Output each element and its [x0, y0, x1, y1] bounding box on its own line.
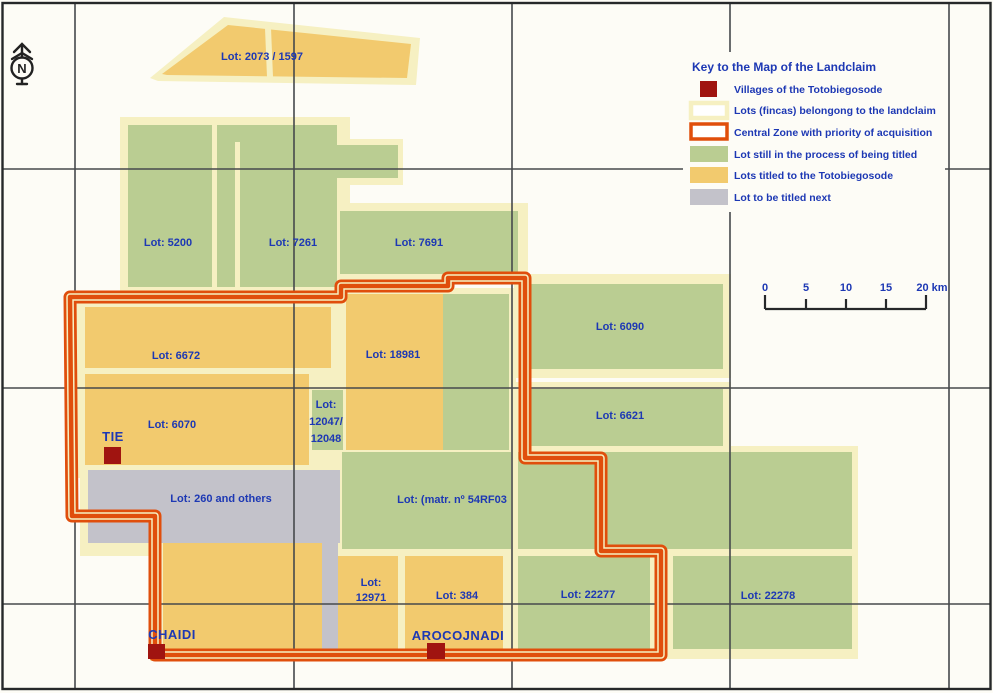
lot-12047-line2: 12047/ — [309, 416, 343, 428]
village-tie-label: TIE — [102, 429, 124, 444]
gray-fill-swatch — [690, 189, 728, 205]
lot-260-label: Lot: 260 and others — [170, 493, 271, 505]
village-chaidi-square — [148, 644, 165, 659]
lot-22278-label: Lot: 22278 — [741, 590, 795, 602]
scale-tick-label-0: 0 — [762, 282, 768, 294]
scale-tick-label-5: 5 — [803, 282, 809, 294]
legend-item-label: Lot to be titled next — [734, 192, 831, 204]
village-arocojnadi-square — [427, 643, 445, 659]
green-strip-area — [217, 142, 235, 287]
lot-6070-label: Lot: 6070 — [148, 419, 196, 431]
lot-18981-area — [346, 294, 443, 450]
lot-260-area — [88, 470, 340, 543]
lot-22277-area — [518, 556, 650, 649]
lot-5200-area — [128, 125, 212, 287]
scale-tick-label-10: 10 — [840, 282, 852, 294]
lot-12971-line2: 12971 — [356, 592, 387, 604]
legend-title: Key to the Map of the Landclaim — [692, 60, 876, 74]
compass-n-letter: N — [17, 61, 26, 76]
legend-item-label: Lot still in the process of being titled — [734, 149, 917, 161]
village-arocojnadi-label: AROCOJNADI — [412, 628, 504, 643]
north-arm-area — [336, 145, 398, 178]
legend-item-green: Lot still in the process of being titled — [690, 146, 917, 162]
green-fill-swatch — [690, 146, 728, 162]
lots-outline-swatch — [691, 103, 727, 118]
legend-item-label: Lots titled to the Totobiegosode — [734, 170, 893, 182]
map-canvas: TIE CHAIDI AROCOJNADI Lot: 2073 / 1597 L… — [0, 0, 993, 693]
lot-22278-area — [673, 556, 852, 649]
gray-column-area — [322, 543, 338, 653]
lot-6672-label: Lot: 6672 — [152, 350, 200, 362]
legend-item-label: Lots (fincas) belongong to the landclaim — [734, 105, 936, 117]
lot-22277-label: Lot: 22277 — [561, 589, 615, 601]
village-tie-square — [104, 447, 121, 464]
legend-item-gray: Lot to be titled next — [690, 189, 831, 205]
lot-6621-label: Lot: 6621 — [596, 410, 644, 422]
legend: Key to the Map of the Landclaim Villages… — [683, 52, 945, 212]
lot-18981-label: Lot: 18981 — [366, 349, 420, 361]
lot-7261-label: Lot: 7261 — [269, 237, 317, 249]
landclaim-map: TIE CHAIDI AROCOJNADI Lot: 2073 / 1597 L… — [0, 0, 993, 693]
lot-7691-label: Lot: 7691 — [395, 237, 443, 249]
lot-12047-line1: Lot: — [316, 399, 337, 411]
lot-2073-label: Lot: 2073 / 1597 — [221, 51, 303, 63]
central-zone-swatch — [691, 124, 727, 139]
legend-item-central-zone: Central Zone with priority of acquisitio… — [691, 124, 932, 139]
lot-54rf03-label: Lot: (matr. nº 54RF03 — [397, 494, 507, 506]
village-square-swatch — [700, 81, 717, 97]
legend-item-lots-outline: Lots (fincas) belongong to the landclaim — [691, 103, 936, 118]
legend-item-label: Villages of the Totobiegosode — [734, 84, 883, 96]
lot-18981-east-area — [443, 294, 509, 450]
lot-7261-area — [240, 142, 337, 287]
lot-12971-line1: Lot: — [361, 577, 382, 589]
yellow-fill-swatch — [690, 167, 728, 183]
village-chaidi-label: CHAIDI — [148, 627, 196, 642]
lot-5200-label: Lot: 5200 — [144, 237, 192, 249]
north-green-top — [217, 125, 337, 142]
scale-tick-label-20km: 20 km — [916, 282, 947, 294]
lot-12047-line3: 12048 — [311, 433, 342, 445]
legend-item-yellow: Lots titled to the Totobiegosode — [690, 167, 893, 183]
lot-6090-label: Lot: 6090 — [596, 321, 644, 333]
lot-384-label: Lot: 384 — [436, 590, 479, 602]
legend-item-label: Central Zone with priority of acquisitio… — [734, 127, 932, 139]
scale-tick-label-15: 15 — [880, 282, 892, 294]
